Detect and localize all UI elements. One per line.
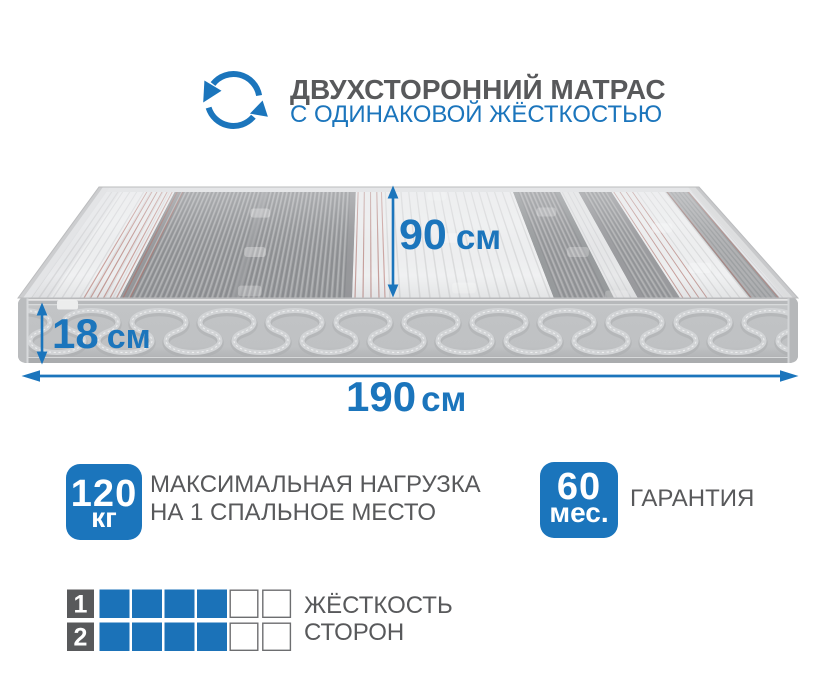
svg-text:1: 1 (74, 591, 88, 619)
svg-text:2: 2 (74, 624, 88, 652)
